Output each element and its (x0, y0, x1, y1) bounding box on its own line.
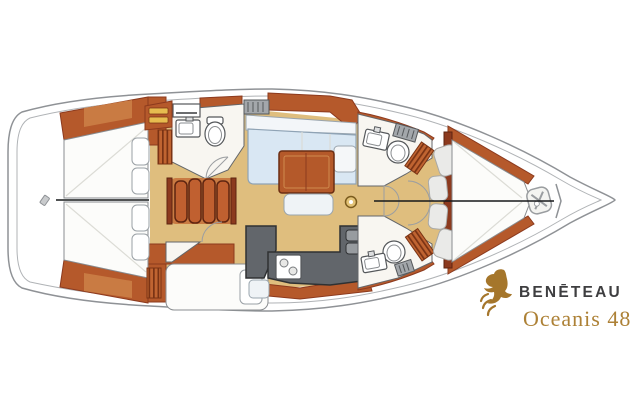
stair-rail (231, 178, 236, 224)
brand-block: BENĒTEAU Oceanis 48 (481, 269, 630, 331)
saloon-table (279, 151, 334, 193)
pillow (132, 138, 149, 165)
stair-rail (167, 178, 172, 224)
nav-seat (249, 280, 269, 298)
vanity-top (173, 104, 200, 117)
burner-icon (289, 267, 297, 275)
brand-name: BENĒTEAU (519, 284, 622, 301)
locker-label (149, 108, 168, 114)
step (217, 181, 229, 222)
toilet-icon (387, 141, 409, 163)
pillow (132, 234, 149, 260)
faucet-icon (374, 127, 381, 133)
vanity-locker (173, 104, 200, 117)
toilet-icon (205, 117, 225, 146)
toilet-icon (383, 241, 405, 263)
hanging-locker (147, 268, 161, 298)
seahorse-icon (481, 269, 512, 315)
companionway-steps (167, 178, 236, 224)
seat-cushion (428, 203, 449, 230)
step (203, 179, 215, 223)
stove-icon (276, 255, 301, 279)
step (175, 181, 187, 222)
hanging-locker (158, 130, 172, 164)
burner-icon (280, 259, 288, 267)
settee-corner-seat (334, 146, 356, 172)
mast-post-icon (346, 197, 357, 208)
bench-seat (284, 194, 333, 215)
pillow (132, 205, 149, 231)
faucet-icon (368, 251, 375, 257)
pillow (132, 168, 149, 194)
vent-grille (244, 100, 269, 114)
model-name: Oceanis 48 (523, 306, 630, 331)
yacht-floor-plan: BENĒTEAU Oceanis 48 (0, 0, 630, 420)
laundry-locker (145, 101, 172, 130)
locker-label (149, 117, 168, 123)
seat-cushion (428, 175, 449, 202)
step (189, 179, 201, 223)
floor-plan-page: BENĒTEAU Oceanis 48 (0, 0, 630, 420)
